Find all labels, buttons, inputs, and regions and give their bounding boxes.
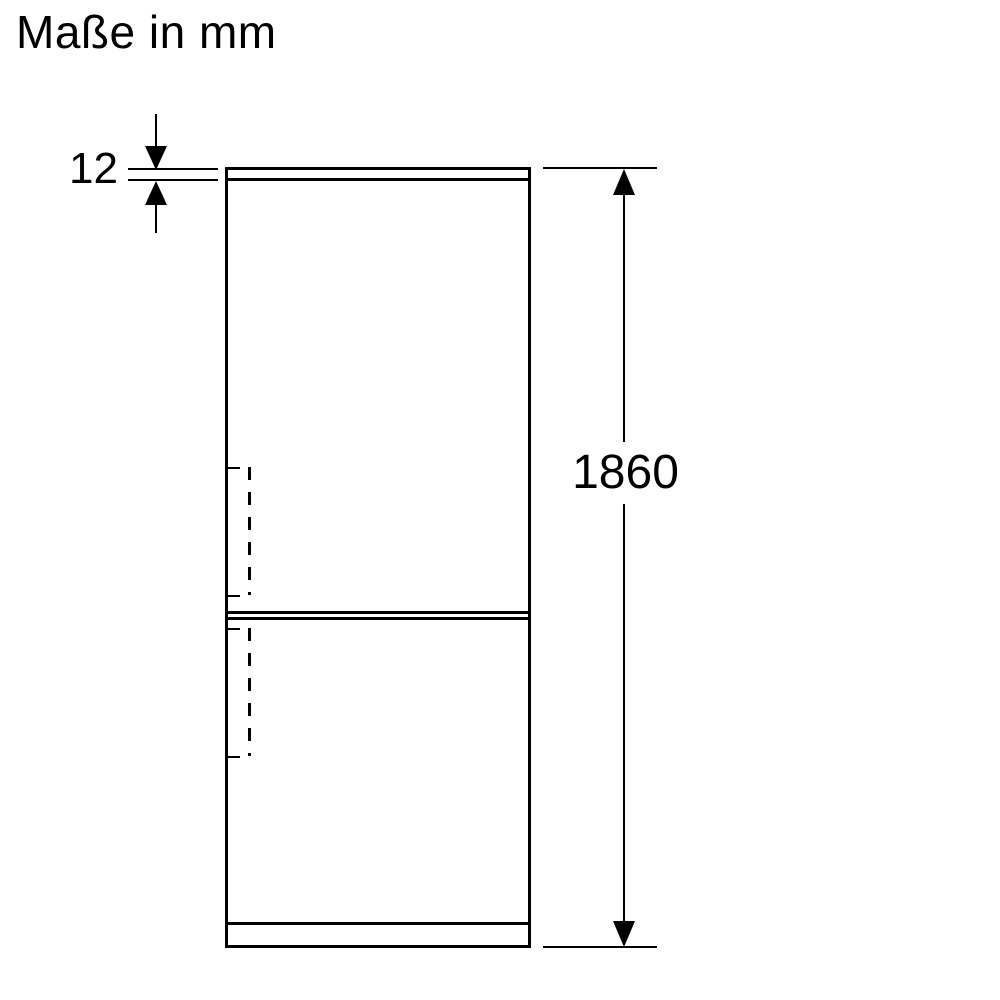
dimension-line [623, 504, 625, 922]
upper-door-swing-dashed-line [248, 467, 251, 595]
dimension-top-gap-value: 12 [58, 146, 118, 192]
door-divider-line-upper [228, 611, 528, 614]
extension-line-top [543, 167, 657, 169]
lower-door-swing-dashed-line [248, 628, 251, 756]
dash-end-tick [228, 467, 240, 469]
extension-line-bottom [128, 179, 218, 181]
extension-line-bottom [543, 946, 657, 948]
top-strip-line [228, 178, 528, 181]
dash-end-tick [228, 756, 240, 758]
dimension-diagram: Maße in mm 12 1860 [0, 0, 1000, 1000]
page-title: Maße in mm [16, 6, 277, 59]
dash-end-tick [228, 595, 240, 597]
arrow-up-icon [145, 181, 167, 205]
dash-end-tick [228, 628, 240, 630]
dimension-line [623, 194, 625, 442]
arrow-down-icon [613, 921, 635, 947]
dimension-line [155, 114, 157, 147]
dimension-overall-height-value: 1860 [553, 448, 698, 498]
arrow-down-icon [145, 146, 167, 170]
extension-line-top [128, 168, 218, 170]
plinth-line [228, 922, 528, 925]
door-divider-line-lower [228, 617, 528, 620]
appliance-outline [225, 167, 531, 948]
dimension-line [155, 204, 157, 233]
arrow-up-icon [613, 169, 635, 195]
